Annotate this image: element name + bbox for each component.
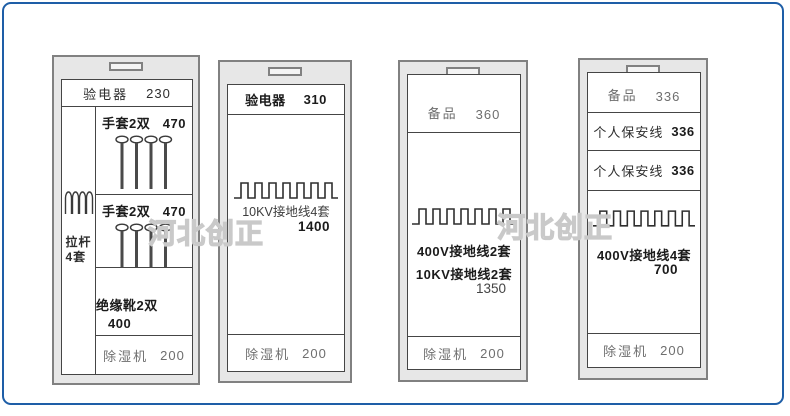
coil-spring-icon <box>64 189 94 215</box>
gloves-label: 手套2双 <box>102 116 150 131</box>
hanger-rail-icon <box>234 179 338 199</box>
cabinet-layout-diagram: 验电器 230 拉杆 4套 <box>0 0 790 416</box>
dehumidifier-value: 200 <box>302 346 327 361</box>
gloves-value: 470 <box>163 116 186 131</box>
tester-value: 230 <box>146 86 171 101</box>
cabinet-2-header-row: 验电器 310 <box>228 85 344 115</box>
personal-ground-value: 336 <box>671 163 694 178</box>
dehumidifier-value: 200 <box>160 348 185 363</box>
cabinet-3-header-row: 备品 360 <box>408 75 520 133</box>
ground-wire-value: 1400 <box>298 219 330 234</box>
personal-ground-label: 个人保安线 <box>593 161 663 180</box>
spare-row: 备品 336 <box>588 73 700 113</box>
dehumidifier-value: 200 <box>480 346 505 361</box>
ground-wire-label: 400V接地线4套 <box>588 245 700 264</box>
watermark-text: 河北创正 <box>497 206 613 246</box>
dehumidifier-label: 除湿机 <box>245 344 290 363</box>
ground-wire-value: 1350 <box>476 281 506 296</box>
dehumidifier-label: 除湿机 <box>423 344 468 363</box>
watermark-text: 河北创正 <box>148 212 264 252</box>
dehumidifier-value: 200 <box>660 343 685 358</box>
boots-label: 绝缘靴2双 <box>96 298 158 313</box>
dehumidifier-row: 除湿机 200 <box>588 333 700 367</box>
dehumidifier-row: 除湿机 200 <box>96 336 192 374</box>
personal-ground-row-2: 个人保安线 336 <box>588 151 700 191</box>
personal-ground-row-1: 个人保安线 336 <box>588 113 700 151</box>
tester-label: 验电器 <box>83 84 128 103</box>
dehumidifier-label: 除湿机 <box>603 341 648 360</box>
cabinet-1-left-column: 拉杆 4套 <box>62 107 96 374</box>
gloves-label: 手套2双 <box>102 204 150 219</box>
pull-rod-label: 拉杆 4套 <box>66 235 92 265</box>
dehumidifier-row: 除湿机 200 <box>228 334 344 371</box>
cabinet-1-header-row: 验电器 230 <box>62 80 192 107</box>
tester-value: 310 <box>304 92 327 107</box>
dehumidifier-label: 除湿机 <box>103 346 148 365</box>
boots-value: 400 <box>108 316 131 331</box>
personal-ground-value: 336 <box>671 124 694 139</box>
spare-value: 336 <box>656 89 681 104</box>
dehumidifier-row: 除湿机 200 <box>408 336 520 369</box>
ground-wire-value: 700 <box>654 262 678 277</box>
spare-label: 备品 <box>608 85 638 104</box>
spare-value: 360 <box>476 107 501 122</box>
gloves-row-1: 手套2双 470 <box>96 107 192 195</box>
spare-label: 备品 <box>428 103 458 122</box>
cabinet-1-handle <box>109 62 143 71</box>
glove-pin-rack-icon <box>113 135 175 191</box>
personal-ground-label: 个人保安线 <box>593 122 663 141</box>
boots-row: 绝缘靴2双 400 <box>96 268 192 336</box>
cabinet-2-handle <box>268 67 302 76</box>
tester-label: 验电器 <box>245 90 286 109</box>
